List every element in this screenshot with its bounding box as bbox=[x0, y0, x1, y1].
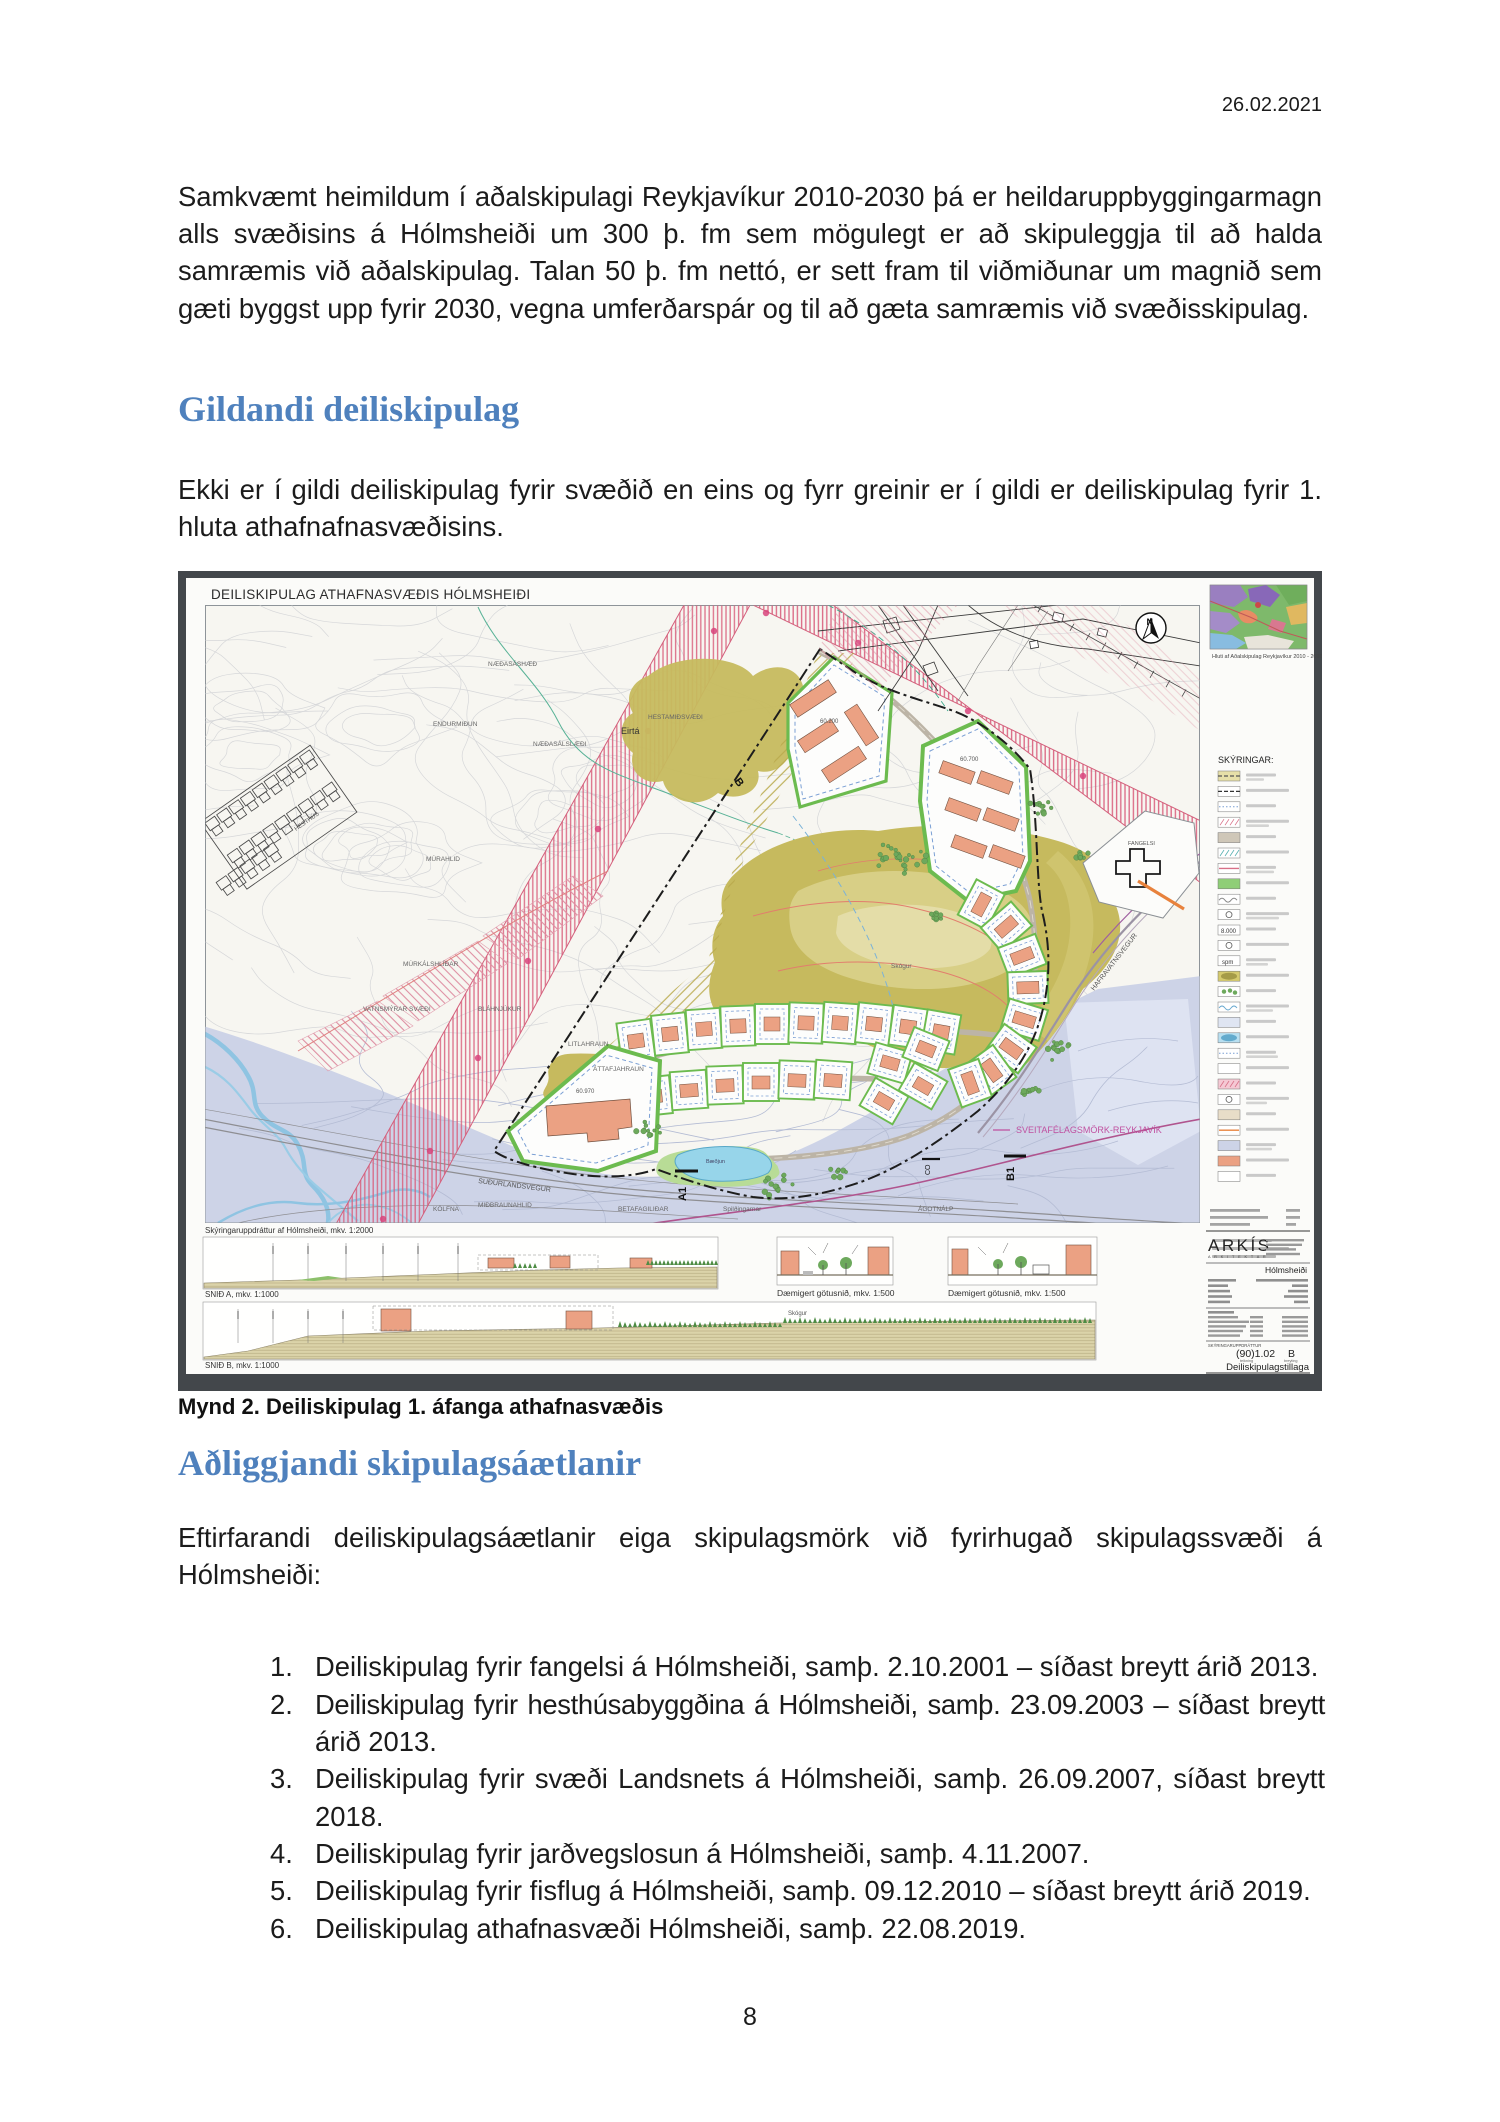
svg-text:60.200: 60.200 bbox=[820, 719, 839, 725]
svg-text:Skógur: Skógur bbox=[891, 963, 912, 970]
svg-text:NÆÐASÁLSLÆÐI: NÆÐASÁLSLÆÐI bbox=[533, 739, 587, 748]
svg-text:ÁTTAFJAHRAUN: ÁTTAFJAHRAUN bbox=[593, 1064, 644, 1073]
svg-text:Dæmigert götusnið, mkv. 1:500: Dæmigert götusnið, mkv. 1:500 bbox=[948, 1288, 1066, 1298]
svg-text:Skógur: Skógur bbox=[788, 1311, 807, 1317]
svg-text:60.700: 60.700 bbox=[960, 757, 979, 763]
svg-text:SVEITAFÉLAGSMÖRK-REYKJAVÍK: SVEITAFÉLAGSMÖRK-REYKJAVÍK bbox=[1016, 1125, 1162, 1135]
svg-text:N: N bbox=[1147, 617, 1154, 627]
svg-text:spm: spm bbox=[1222, 960, 1233, 966]
svg-text:SNIÐ B, mkv. 1:1000: SNIÐ B, mkv. 1:1000 bbox=[205, 1361, 280, 1370]
svg-text:SNIÐ A, mkv. 1:1000: SNIÐ A, mkv. 1:1000 bbox=[205, 1290, 279, 1299]
svg-text:MÚRKÁLSHLÍÐAR: MÚRKÁLSHLÍÐAR bbox=[403, 959, 459, 968]
svg-text:Deiliskipulagstillaga: Deiliskipulagstillaga bbox=[1226, 1362, 1310, 1373]
svg-text:Hólmsheiði: Hólmsheiði bbox=[1265, 1265, 1307, 1275]
svg-text:A R K I T E K T A R: A R K I T E K T A R bbox=[1208, 1255, 1267, 1259]
svg-text:A1: A1 bbox=[677, 1187, 689, 1201]
svg-text:Hluti af Aðalskipulag Reykjaví: Hluti af Aðalskipulag Reykjavíkur 2010 -… bbox=[1212, 653, 1322, 660]
svg-text:Spilðingarnar: Spilðingarnar bbox=[723, 1205, 762, 1213]
svg-text:Eirtá: Eirtá bbox=[621, 726, 640, 736]
svg-text:ÁGOTNÁLP: ÁGOTNÁLP bbox=[918, 1204, 953, 1213]
svg-text:Dæmigert götusnið, mkv. 1:500: Dæmigert götusnið, mkv. 1:500 bbox=[777, 1288, 895, 1298]
svg-text:ARKÍS: ARKÍS bbox=[1208, 1236, 1272, 1255]
svg-text:VATNSMÝRAR SVÆÐI: VATNSMÝRAR SVÆÐI bbox=[363, 1004, 431, 1013]
svg-text:SKÝRINGAR:: SKÝRINGAR: bbox=[1218, 755, 1274, 765]
svg-text:NÆÐASÁSHÆÐ: NÆÐASÁSHÆÐ bbox=[488, 659, 537, 668]
svg-text:B1: B1 bbox=[1005, 1167, 1017, 1181]
svg-text:DEILISKIPULAG ATHAFNASVÆÐIS HÓ: DEILISKIPULAG ATHAFNASVÆÐIS HÓLMSHEIÐI bbox=[211, 587, 530, 602]
svg-text:BETAFAGILIÐAR: BETAFAGILIÐAR bbox=[618, 1206, 669, 1213]
svg-text:HESTAMIÐSVÆÐI: HESTAMIÐSVÆÐI bbox=[648, 714, 703, 721]
svg-text:ENDURMIÐUN: ENDURMIÐUN bbox=[433, 721, 478, 728]
svg-text:MÚRAHLID: MÚRAHLID bbox=[426, 854, 460, 863]
svg-text:60.970: 60.970 bbox=[576, 1089, 595, 1095]
svg-text:Skýringaruppdráttur af Hólmshe: Skýringaruppdráttur af Hólmsheiði, mkv. … bbox=[205, 1226, 374, 1235]
svg-text:BLÁHNJÚKUR: BLÁHNJÚKUR bbox=[478, 1004, 522, 1013]
svg-text:KÓLFNA: KÓLFNA bbox=[433, 1204, 460, 1213]
svg-text:LITLAHRAUN: LITLAHRAUN bbox=[568, 1041, 609, 1048]
svg-text:FANGELSI: FANGELSI bbox=[1128, 841, 1155, 847]
svg-text:8.000: 8.000 bbox=[1221, 929, 1237, 935]
svg-text:MIÐBRAUNAHLID: MIÐBRAUNAHLID bbox=[478, 1202, 532, 1209]
svg-text:Bæðjun: Bæðjun bbox=[706, 1158, 725, 1165]
svg-text:CO: CO bbox=[925, 1164, 932, 1175]
